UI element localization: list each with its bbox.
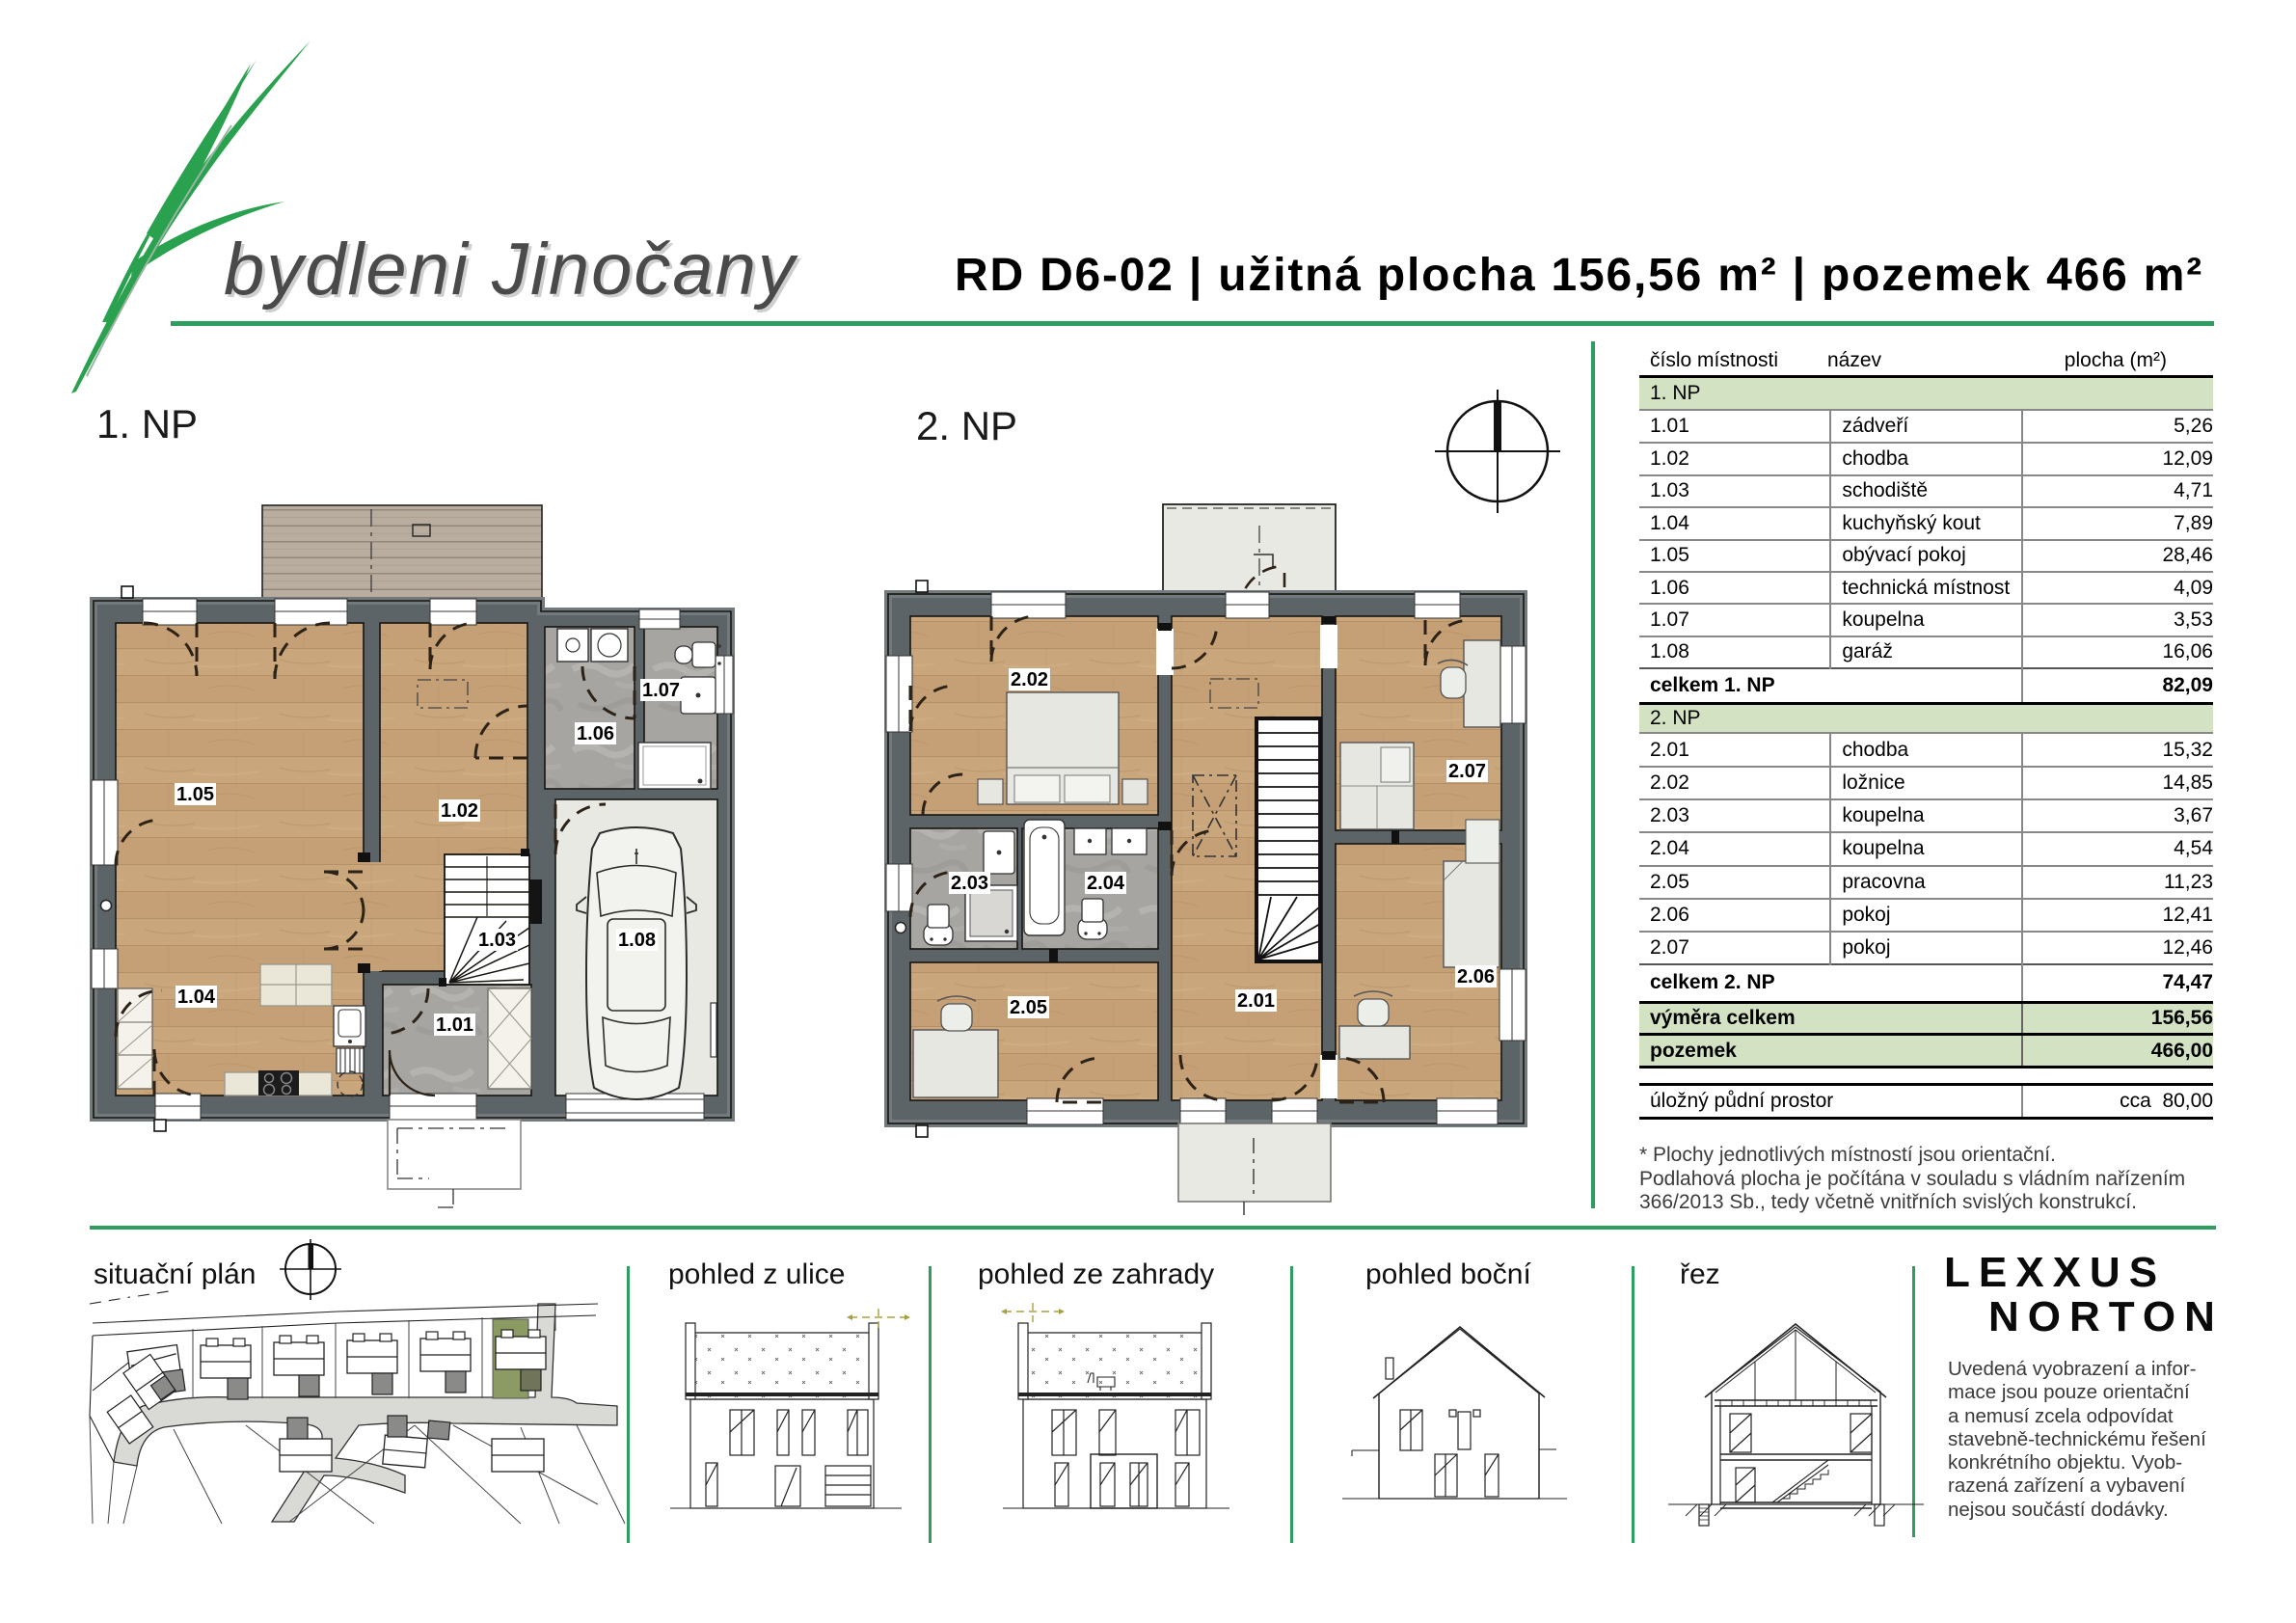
svg-text:1.02: 1.02: [441, 800, 478, 822]
svg-text:2.05: 2.05: [1010, 997, 1047, 1018]
svg-text:1.05: 1.05: [176, 784, 214, 805]
svg-text:2.03: 2.03: [951, 873, 988, 894]
svg-text:2.04: 2.04: [1087, 873, 1125, 894]
svg-text:1.04: 1.04: [177, 987, 216, 1008]
svg-text:1.06: 1.06: [577, 723, 614, 744]
svg-text:2.06: 2.06: [1457, 966, 1495, 987]
svg-text:1.07: 1.07: [642, 680, 680, 701]
svg-text:2.01: 2.01: [1237, 990, 1275, 1012]
svg-text:2.07: 2.07: [1448, 761, 1486, 782]
svg-text:2.02: 2.02: [1011, 669, 1048, 690]
svg-text:1.08: 1.08: [618, 930, 656, 951]
svg-text:1.01: 1.01: [436, 1014, 473, 1036]
svg-text:1.03: 1.03: [478, 930, 516, 951]
